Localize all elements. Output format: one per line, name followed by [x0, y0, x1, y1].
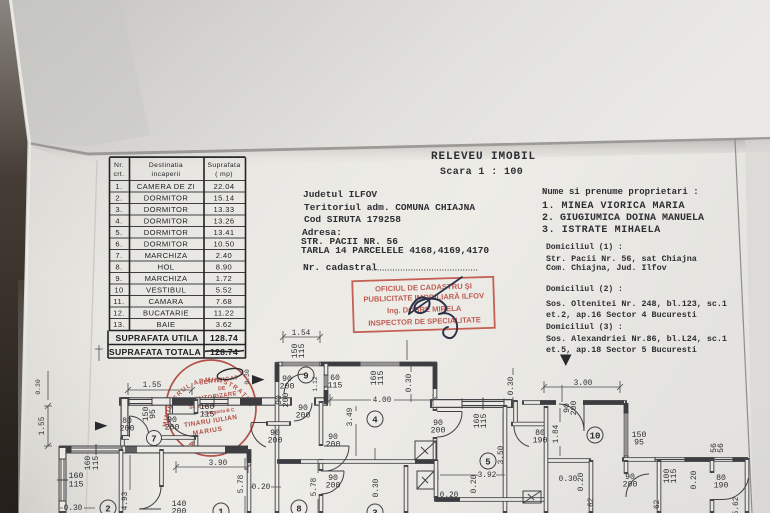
svg-text:et.2, ap.16 Sector 4 Bucuresti: et.2, ap.16 Sector 4 Bucuresti	[546, 310, 697, 320]
svg-text:2.40: 2.40	[216, 251, 232, 260]
svg-text:DORMITOR: DORMITOR	[144, 205, 189, 214]
svg-text:6.: 6.	[115, 240, 122, 249]
svg-text:3: 3	[372, 509, 377, 513]
svg-text:10: 10	[590, 432, 601, 442]
svg-text:1: 1	[218, 508, 224, 513]
svg-text:Teritoriul adm. COMUNA CHIAJNA: Teritoriul adm. COMUNA CHIAJNA	[304, 202, 475, 213]
svg-text:SUPRAFATA UTILA: SUPRAFATA UTILA	[115, 333, 198, 343]
svg-text:SUPRAFATA TOTALA: SUPRAFATA TOTALA	[109, 347, 201, 357]
svg-text:5.52: 5.52	[216, 286, 232, 295]
svg-text:13.: 13.	[113, 320, 125, 329]
svg-text:Domiciliul (1) :: Domiciliul (1) :	[546, 243, 623, 252]
svg-text:200: 200	[326, 482, 341, 491]
svg-text:4.00: 4.00	[373, 397, 392, 405]
svg-text:1. MINEA VIORICA MARIA: 1. MINEA VIORICA MARIA	[542, 201, 685, 212]
svg-text:3.92: 3.92	[478, 472, 497, 480]
svg-text:11.22: 11.22	[214, 309, 234, 318]
svg-text:INSPECTOR DE SPECIALITATE: INSPECTOR DE SPECIALITATE	[368, 315, 481, 328]
svg-text:HOL: HOL	[158, 263, 175, 272]
svg-text:DORMITOR: DORMITOR	[144, 217, 189, 226]
svg-text:56: 56	[717, 443, 726, 453]
svg-text:0.20: 0.20	[252, 484, 271, 492]
svg-text:Com. Chiajna, Jud. Ilfov: Com. Chiajna, Jud. Ilfov	[546, 263, 667, 273]
svg-text:115: 115	[670, 469, 679, 484]
svg-text:8: 8	[296, 505, 301, 513]
svg-text:Domiciliul (2) :: Domiciliul (2) :	[546, 285, 623, 294]
svg-text:Destinatia: Destinatia	[149, 162, 183, 169]
svg-text:Suprafata: Suprafata	[207, 162, 240, 169]
svg-text:2. GIUGIUMICA DOINA MANUELA: 2. GIUGIUMICA DOINA MANUELA	[542, 213, 704, 224]
svg-text:5.62: 5.62	[733, 496, 741, 513]
svg-text:115: 115	[92, 456, 101, 471]
svg-text:5: 5	[485, 458, 490, 468]
svg-text:200: 200	[120, 425, 135, 434]
svg-text:DORMITOR: DORMITOR	[144, 240, 189, 249]
svg-text:1.84: 1.84	[553, 424, 561, 443]
svg-text:0.30: 0.30	[64, 505, 83, 513]
svg-text:Nume si prenume proprietari :: Nume si prenume proprietari :	[542, 187, 699, 197]
svg-text:MARCHIZA: MARCHIZA	[145, 274, 188, 283]
svg-text:200: 200	[172, 508, 187, 513]
svg-text:Ing. DOBRE MIRELA: Ing. DOBRE MIRELA	[387, 304, 462, 315]
svg-text:Sos. Oltenitei Nr. 248, bl.12: Sos. Oltenitei Nr. 248, bl.123, sc.1	[546, 299, 727, 309]
svg-text:1.: 1.	[115, 182, 122, 191]
svg-text:8.: 8.	[115, 263, 122, 272]
svg-text:10: 10	[114, 286, 123, 295]
svg-text:115: 115	[328, 382, 343, 391]
svg-text:0.30: 0.30	[35, 379, 42, 395]
svg-text:Nr.: Nr.	[114, 162, 124, 169]
svg-text:200: 200	[296, 412, 311, 421]
svg-text:4.93: 4.93	[122, 491, 130, 510]
svg-text:1.55: 1.55	[143, 382, 162, 390]
svg-text:115: 115	[298, 344, 307, 359]
svg-text:Domiciliul (3) :: Domiciliul (3) :	[546, 323, 623, 332]
svg-text:1.72: 1.72	[216, 274, 232, 283]
svg-text:CAMERA DE ZI: CAMERA DE ZI	[137, 182, 195, 191]
svg-text:BUCATARIE: BUCATARIE	[143, 309, 189, 318]
svg-text:7.68: 7.68	[216, 297, 232, 306]
svg-text:190: 190	[533, 437, 548, 446]
svg-text:200: 200	[326, 441, 341, 450]
svg-text:VESTIBUL: VESTIBUL	[146, 286, 186, 295]
svg-text:115: 115	[377, 371, 386, 386]
svg-text:Sos. Alexandriei Nr.86, bl.L24: Sos. Alexandriei Nr.86, bl.L24, sc.1	[546, 334, 727, 344]
svg-text:7.: 7.	[115, 251, 122, 260]
svg-text:incaperii: incaperii	[152, 171, 181, 178]
svg-text:200: 200	[623, 481, 638, 490]
svg-text:DE: DE	[218, 385, 227, 392]
svg-text:5.78: 5.78	[238, 474, 246, 493]
svg-text:115: 115	[480, 414, 489, 429]
svg-text:7: 7	[151, 435, 156, 445]
svg-text:0.30: 0.30	[559, 476, 578, 484]
svg-text:4.: 4.	[115, 217, 122, 226]
svg-text:200: 200	[165, 424, 180, 433]
svg-text:5.62: 5.62	[588, 497, 596, 513]
svg-text:0.30: 0.30	[406, 373, 414, 392]
svg-text:0.20: 0.20	[440, 492, 459, 500]
svg-text:et.5, ap.18 Sector 5 Bucuresti: et.5, ap.18 Sector 5 Bucuresti	[546, 345, 697, 355]
svg-text:2.: 2.	[115, 194, 122, 203]
svg-text:13.33: 13.33	[213, 205, 234, 214]
svg-text:3.00: 3.00	[574, 380, 593, 388]
svg-text:3. ISTRATE MIHAELA: 3. ISTRATE MIHAELA	[542, 225, 661, 236]
svg-text:1.54: 1.54	[292, 330, 311, 338]
svg-text:5.78: 5.78	[311, 477, 319, 496]
svg-text:Judetul ILFOV: Judetul ILFOV	[303, 189, 377, 200]
svg-text:200: 200	[268, 437, 283, 446]
svg-text:200: 200	[570, 401, 579, 416]
svg-text:0.30: 0.30	[373, 478, 381, 497]
svg-text:3.49: 3.49	[347, 407, 355, 426]
svg-text:13.26: 13.26	[213, 217, 234, 226]
svg-text:10.50: 10.50	[213, 240, 234, 249]
svg-text:Scara 1 : 100: Scara 1 : 100	[440, 167, 523, 178]
svg-text:1.55: 1.55	[39, 416, 47, 435]
svg-text:12.: 12.	[113, 309, 125, 318]
svg-text:200: 200	[280, 383, 295, 392]
svg-text:200: 200	[282, 393, 291, 408]
svg-text:CAMARA: CAMARA	[149, 297, 184, 306]
svg-text:115: 115	[200, 411, 215, 420]
svg-text:11.: 11.	[113, 297, 124, 306]
svg-text:Cod SIRUTA 179258: Cod SIRUTA 179258	[304, 214, 401, 225]
svg-text:Nr. cadastral: Nr. cadastral	[303, 262, 377, 273]
svg-text:0.30: 0.30	[508, 376, 516, 395]
svg-text:MARCHIZA: MARCHIZA	[145, 251, 188, 260]
svg-text:0.20: 0.20	[578, 472, 586, 491]
svg-text:3.90: 3.90	[209, 460, 228, 468]
svg-text:DORMITOR: DORMITOR	[144, 194, 189, 203]
svg-text:4: 4	[372, 416, 378, 426]
svg-text:8.90: 8.90	[216, 263, 232, 272]
svg-text:13.41: 13.41	[213, 228, 234, 237]
svg-text:3.: 3.	[115, 205, 122, 214]
svg-text:5.: 5.	[115, 228, 122, 237]
svg-text:1.12: 1.12	[312, 376, 319, 392]
svg-text:RELEVEU IMOBIL: RELEVEU IMOBIL	[431, 151, 536, 163]
svg-text:15.14: 15.14	[213, 194, 234, 203]
svg-text:0.20: 0.20	[691, 470, 699, 489]
svg-text:0.30: 0.30	[244, 369, 251, 385]
svg-text:3.62: 3.62	[216, 320, 232, 329]
svg-text:9.: 9.	[115, 274, 122, 283]
svg-text:0.20: 0.20	[471, 474, 479, 493]
svg-text:TARLA 14 PARCELELE 4168,4169,4: TARLA 14 PARCELELE 4168,4169,4170	[301, 245, 489, 256]
svg-text:DORMITOR: DORMITOR	[144, 228, 189, 237]
svg-text:9: 9	[303, 372, 308, 382]
svg-text:5.62: 5.62	[654, 499, 662, 513]
svg-text:22.04: 22.04	[213, 182, 234, 191]
svg-text:2: 2	[105, 505, 110, 513]
svg-text:128.74: 128.74	[210, 333, 238, 343]
svg-text:115: 115	[68, 480, 83, 490]
svg-text:( mp): ( mp)	[215, 171, 233, 178]
svg-text:3.50: 3.50	[498, 445, 506, 464]
svg-text:95: 95	[634, 439, 644, 448]
svg-text:190: 190	[714, 482, 729, 491]
svg-text:200: 200	[431, 427, 446, 436]
svg-text:95: 95	[149, 409, 158, 419]
svg-text:BAIE: BAIE	[157, 320, 176, 329]
svg-text:crt.: crt.	[113, 171, 124, 178]
